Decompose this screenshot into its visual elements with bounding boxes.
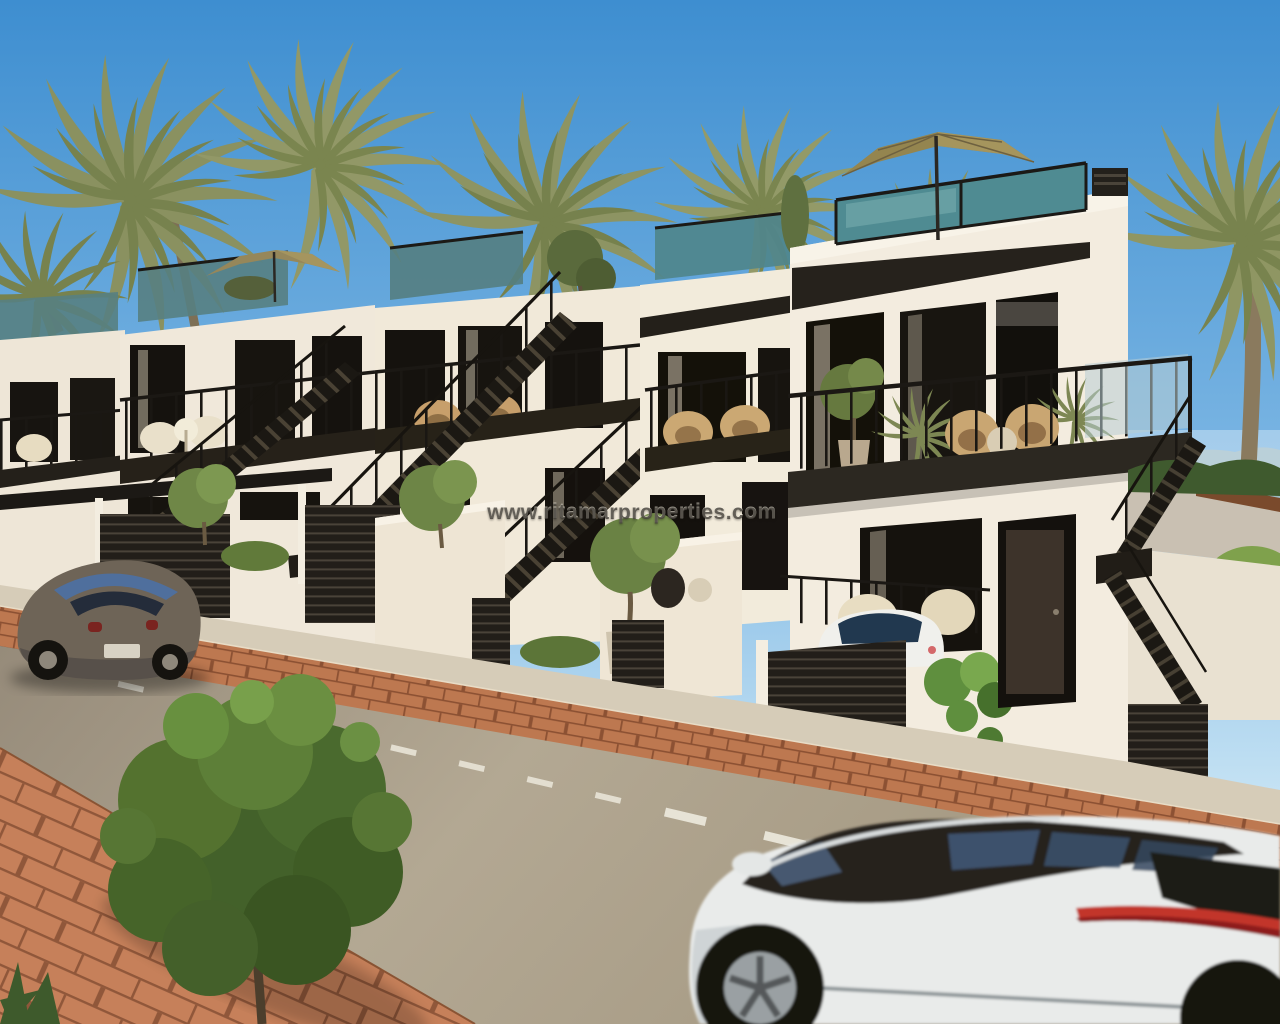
suv-window — [1044, 832, 1130, 868]
tail-light — [88, 622, 102, 632]
front-door — [998, 514, 1076, 708]
watermark: www.ritamarproperties.com — [487, 501, 776, 525]
patio-chair — [16, 434, 52, 462]
louver-panel — [612, 620, 664, 688]
hedge — [520, 636, 600, 668]
side-mirror — [732, 852, 772, 876]
patio-chair-dark — [651, 568, 685, 608]
render-scene: www.ritamarproperties.com — [0, 0, 1280, 1024]
patio-table — [688, 578, 712, 602]
license-plate — [104, 644, 140, 658]
suv-window — [948, 830, 1040, 870]
chimney-vent — [1092, 168, 1128, 196]
entry-door — [742, 482, 788, 590]
rooftop-plant — [224, 276, 276, 300]
carport-post — [298, 484, 306, 584]
hedge — [221, 541, 289, 571]
tail-light — [146, 620, 158, 630]
rooftop-shrub — [781, 175, 809, 255]
